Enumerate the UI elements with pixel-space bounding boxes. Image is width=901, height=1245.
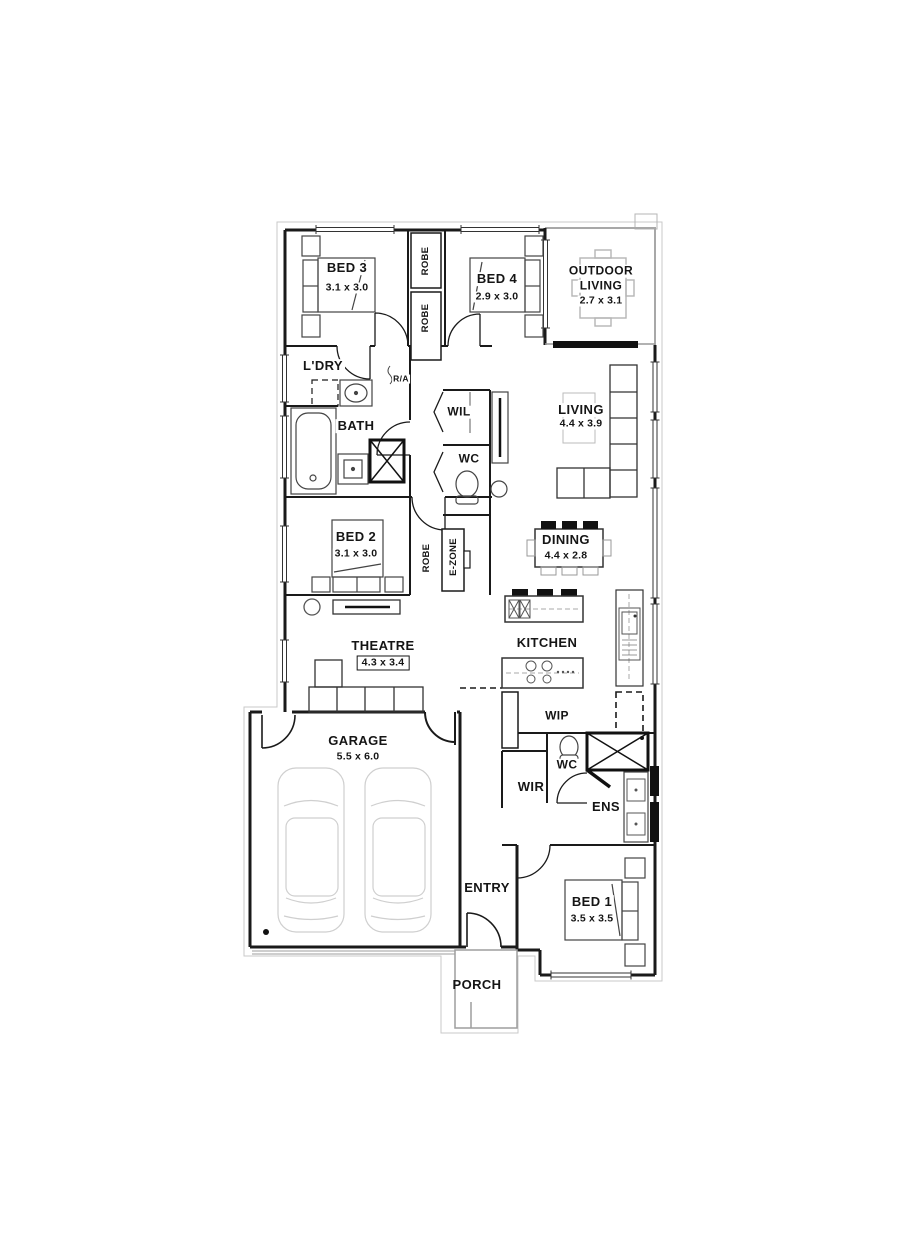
- room-label-outdoor-living-2: LIVING: [578, 280, 624, 293]
- room-label-bed4: BED 4: [475, 272, 519, 286]
- room-dims-outdoor-living: 2.7 x 3.1: [578, 295, 625, 306]
- label-return-air: R/A: [392, 375, 410, 384]
- room-label-robe-1: ROBE: [421, 245, 431, 278]
- room-label-bed2: BED 2: [334, 530, 378, 544]
- room-dims-dining: 4.4 x 2.8: [543, 550, 590, 561]
- washing-machine-space: [312, 380, 338, 406]
- bed4-furniture: [470, 236, 543, 337]
- room-label-laundry: L'DRY: [301, 359, 345, 373]
- room-label-robe-bed2: ROBE: [422, 542, 432, 575]
- room-dims-living: 4.4 x 3.9: [558, 418, 605, 429]
- room-label-robe-2: ROBE: [421, 302, 431, 335]
- room-dims-theatre: 4.3 x 3.4: [357, 655, 410, 670]
- ens-window-obscured-2: [650, 802, 659, 842]
- room-label-wc-ens: WC: [555, 759, 580, 772]
- floor-plan-drawing: [0, 0, 901, 1245]
- room-label-wip: WIP: [543, 710, 571, 723]
- laundry-fixtures: [340, 366, 392, 406]
- room-label-ens: ENS: [590, 800, 622, 814]
- ens-window-obscured-1: [650, 766, 659, 796]
- room-label-living: LIVING: [556, 403, 606, 417]
- room-label-kitchen: KITCHEN: [515, 636, 580, 650]
- windows: [280, 225, 660, 980]
- kitchen-fixtures: [502, 589, 643, 748]
- fridge-space: [616, 692, 643, 733]
- room-label-ezone: E-ZONE: [449, 536, 459, 578]
- floor-plan: BED 3 3.1 x 3.0 ROBE ROBE BED 4 2.9 x 3.…: [0, 0, 901, 1245]
- room-dims-garage: 5.5 x 6.0: [335, 751, 382, 762]
- room-label-garage: GARAGE: [326, 734, 389, 748]
- room-label-outdoor-living-1: OUTDOOR: [567, 265, 635, 278]
- room-dims-bed2: 3.1 x 3.0: [333, 548, 380, 559]
- garage-graphics: [252, 768, 455, 954]
- room-label-bed3: BED 3: [325, 261, 369, 275]
- living-furniture: [557, 365, 637, 498]
- room-label-theatre: THEATRE: [349, 639, 416, 653]
- room-dims-bed1: 3.5 x 3.5: [569, 913, 616, 924]
- room-label-wir: WIR: [516, 780, 546, 794]
- room-label-bath: BATH: [336, 419, 377, 433]
- room-label-wc-hall: WC: [457, 453, 482, 466]
- room-dims-bed3: 3.1 x 3.0: [324, 282, 371, 293]
- ensuite-fixtures: [560, 733, 648, 842]
- room-dims-bed4: 2.9 x 3.0: [474, 291, 521, 302]
- room-label-bed1: BED 1: [570, 895, 614, 909]
- room-label-wil: WIL: [445, 406, 472, 419]
- exterior-walls: [250, 228, 655, 975]
- room-label-dining: DINING: [540, 533, 592, 547]
- outdoor-stacker-door: [553, 341, 638, 348]
- dining-furniture: [527, 521, 611, 575]
- room-label-entry: ENTRY: [462, 881, 512, 895]
- room-label-porch: PORCH: [451, 978, 504, 992]
